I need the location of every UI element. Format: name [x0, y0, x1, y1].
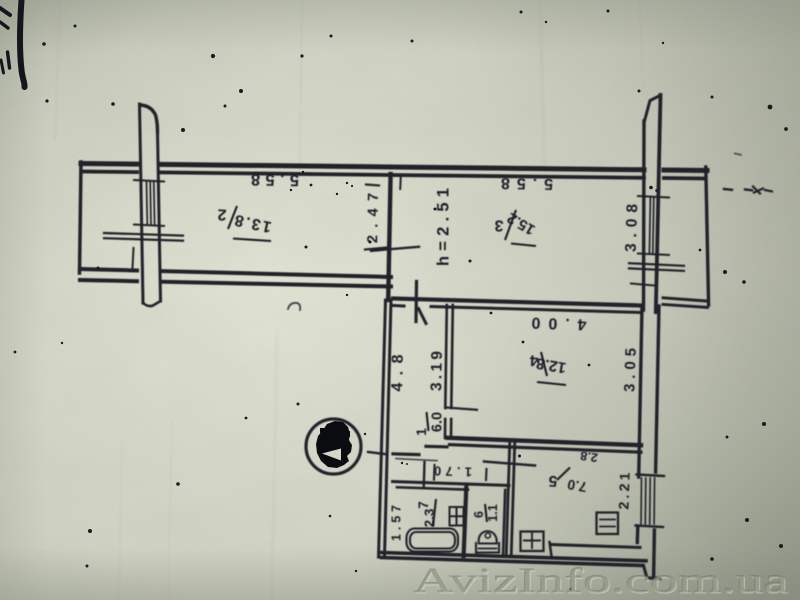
svg-text:5: 5 [548, 472, 558, 490]
svg-text:AvizInfo.com.ua: AvizInfo.com.ua [413, 562, 788, 600]
svg-text:4.8: 4.8 [389, 354, 407, 391]
svg-text:1.70: 1.70 [434, 463, 473, 479]
svg-text:5.58: 5.58 [251, 170, 299, 189]
svg-text:3.05: 3.05 [621, 348, 640, 393]
svg-text:1.1: 1.1 [486, 504, 500, 521]
svg-text:3: 3 [494, 216, 504, 233]
svg-text:3.08: 3.08 [623, 203, 642, 252]
svg-text:1: 1 [413, 428, 429, 436]
svg-text:6: 6 [472, 511, 486, 518]
svg-text:2.8: 2.8 [579, 448, 598, 464]
svg-text:7.0: 7.0 [566, 476, 588, 495]
svg-text:2.21: 2.21 [615, 472, 632, 510]
svg-text:3.19: 3.19 [428, 350, 446, 391]
svg-text:2: 2 [217, 205, 227, 222]
svg-text:6.0: 6.0 [430, 412, 446, 432]
svg-text:1.57: 1.57 [390, 505, 404, 541]
svg-text:7: 7 [416, 501, 431, 509]
